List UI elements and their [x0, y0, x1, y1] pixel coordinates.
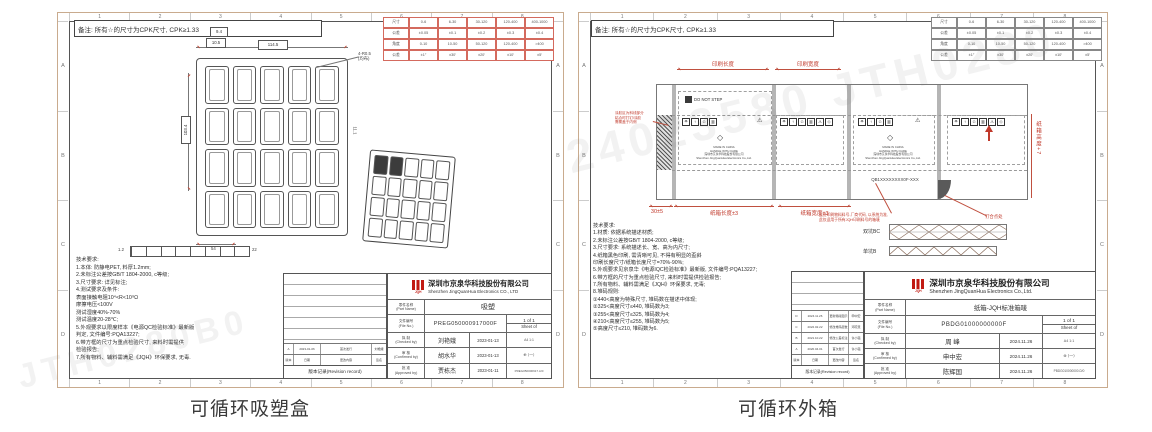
grid-row-label: B: [579, 111, 589, 201]
grid-col-label: 1: [69, 379, 129, 387]
flap-dim-line: [649, 206, 673, 207]
checked-label: 拟 制 (Checked by): [388, 333, 424, 347]
file-no-label: 文件编号 (File No.): [388, 315, 424, 332]
this-side-up-arrow: [985, 125, 993, 141]
tolerance-cell: 6-30: [438, 17, 467, 28]
tray-pocket: [315, 108, 339, 146]
grid-col-label: 5: [311, 379, 371, 387]
revision-letter: C: [792, 322, 801, 332]
flute-bc-label: 双坑BC: [863, 228, 880, 235]
tolerance-cell: 角度: [931, 39, 957, 50]
do-not-step-mark: DO NOT STEP: [685, 96, 722, 103]
grid-row-label: C: [553, 200, 563, 290]
tolerance-cell: ±1°: [957, 50, 986, 61]
tolerance-cell: ±5′: [525, 50, 554, 61]
handling-icon: ♲: [798, 118, 806, 126]
grid-row-label: C: [1097, 200, 1107, 290]
section-cell: [220, 247, 235, 256]
grid-col-label: 4: [250, 379, 310, 387]
tolerance-cell: ±1°: [409, 50, 438, 61]
revision-empty-rows: [284, 274, 386, 343]
revision-header: 签名: [371, 355, 386, 365]
print-width-line: [775, 69, 841, 70]
approved-name: 贾栋杰: [424, 364, 469, 378]
jqh-logo-text: JQH: [415, 290, 422, 294]
grid-col-label: 6: [906, 379, 969, 387]
dim-line-bottom: [196, 244, 236, 245]
confirmed-name: 申中宏: [905, 349, 999, 363]
grid-row-label: D: [553, 290, 563, 380]
tolerance-cell: ±5′: [1073, 50, 1102, 61]
blister-tray-drawing-sheet: 12345678 12345678 ABCD ABCD 备注: 所有☆的尺寸为C…: [57, 12, 564, 388]
file-no-value: PREG050000917000F: [424, 315, 506, 332]
radius-callout: 4-R0.5 (均布): [358, 51, 400, 62]
stitch-note: 钉合点处: [985, 214, 1003, 220]
checked-date: 2023-01-13: [469, 333, 506, 347]
grid-row-label: C: [579, 200, 589, 290]
tolerance-cell: 10-50: [986, 39, 1015, 50]
tray-pocket: [288, 66, 312, 104]
tray-pocket-iso: [402, 178, 417, 198]
tray-pocket: [205, 149, 229, 187]
handling-icon: ▥: [885, 118, 893, 126]
section-cell: [146, 247, 161, 256]
handling-icon: ♲: [876, 118, 884, 126]
grid-col-label: 6: [371, 379, 431, 387]
carton-length-line: [674, 206, 774, 207]
revision-desc: 更新箱唛图示: [828, 311, 848, 321]
tray-pocket: [315, 191, 339, 229]
projection-symbol: ⊕ ⟨一⟩: [506, 348, 551, 362]
material-code: QB1XXXXXXXX0F-XXX: [853, 177, 937, 182]
tolerance-cell: 0-6: [409, 17, 438, 28]
file-no-label: 文件编号 (File No.): [865, 316, 905, 333]
company-name-cn: 深圳市京泉华科技股份有限公司: [929, 277, 1049, 289]
carton-height-line: [1031, 114, 1032, 198]
part-name-value: 纸箱-JQH标准箱唛: [905, 300, 1095, 315]
tolerance-cell: ±0.1: [438, 28, 467, 39]
tolerance-cell: ±0.4: [525, 28, 554, 39]
tolerance-cell: 30-120: [1015, 17, 1044, 28]
crease-line: [672, 85, 676, 199]
title-block: JQH 深圳市京泉华科技股份有限公司 Shenzhen JingQuanHua …: [387, 273, 552, 379]
checked-date: 2024.11.26: [999, 334, 1042, 348]
tray-top-view: [196, 58, 348, 236]
tray-pocket-iso: [371, 176, 386, 196]
confirmed-row: 审 核 (Confirmed by) 胡水华 2023-01-13 ⊕ ⟨一⟩: [388, 347, 551, 362]
tolerance-cell: 0-6: [957, 17, 986, 28]
checked-name: 周 峰: [905, 334, 999, 348]
projection-symbol: ⊕ ⟨一⟩: [1042, 349, 1095, 363]
checked-name: 刘艳娥: [424, 333, 469, 347]
warning-icon: ⚠: [757, 117, 762, 124]
tray-pocket-iso: [430, 223, 445, 243]
grid-column-labels: 12345678: [69, 379, 552, 387]
tray-pocket: [288, 108, 312, 146]
section-cell: [205, 247, 220, 256]
tolerance-cell: ±20′: [1015, 50, 1044, 61]
checked-row: 拟 制 (Checked by) 刘艳娥 2023-01-13 A4 1:1: [388, 332, 551, 347]
revision-date: 2021.10.22: [801, 333, 828, 343]
revision-letter: A: [284, 344, 293, 354]
tray-iso-view: [362, 149, 456, 248]
revision-table: D 2024.11.26 更新箱唛图示 申中宏 C 2022.02.22 修改堆…: [791, 271, 864, 379]
tolerance-cell: 0-10: [957, 39, 986, 50]
grid-row-label: B: [58, 111, 68, 201]
dim-overall-width: 114.5: [258, 40, 288, 50]
handling-icon: ♲: [700, 118, 708, 126]
company-name-en: Shenzhen JingQuanHua Electronics Co.,Ltd…: [929, 289, 1049, 295]
grid-col-label: 5: [843, 13, 906, 21]
format-scale: A4 1:1: [1042, 334, 1095, 348]
grid-col-label: 7: [970, 379, 1033, 387]
approved-label: 批 准 (Approved by): [388, 364, 424, 378]
cpk-note: 备注: 所有☆的尺寸为CPK尺寸, CPK≥1.33: [591, 20, 834, 37]
tolerance-cell: 30-120: [467, 17, 496, 28]
tray-pocket-iso: [433, 181, 448, 201]
tolerance-cell: 400-1000: [525, 17, 554, 28]
grid-col-label: 8: [1033, 379, 1096, 387]
caption-outer-carton: 可循环外箱: [676, 394, 900, 421]
warning-icon: ⚠: [915, 117, 920, 124]
grid-row-label: B: [553, 111, 563, 201]
dim-pocket-width: 11.1: [353, 126, 358, 134]
revision-desc: 修改公差标注: [828, 333, 848, 343]
tolerance-cell: 10-50: [438, 39, 467, 50]
grid-col-label: 2: [653, 379, 716, 387]
approved-name: 陈辉国: [905, 364, 999, 378]
grid-col-label: 7: [431, 379, 491, 387]
grid-row-labels: ABCD: [58, 21, 68, 379]
sheet-label: Sheet of: [1043, 325, 1095, 330]
handling-icon: ◇: [825, 118, 833, 126]
handling-icon: ♲: [970, 118, 978, 126]
handling-icon: ◇: [997, 118, 1005, 126]
tolerance-table: 尺寸0-66-3030-120120-400400-1000公差±0.05±0.…: [931, 17, 1102, 61]
revision-row: D 2024.11.26 更新箱唛图示 申中宏: [792, 310, 863, 321]
handling-icon: ☂: [780, 118, 788, 126]
revision-row: A 2023-01-06 首次发行 刘艳娥: [284, 343, 386, 354]
grid-col-label: 4: [780, 379, 843, 387]
tray-pocket-iso: [414, 222, 429, 242]
handling-icon: ⚠: [816, 118, 824, 126]
revision-record-label: 版本记录(Revision record): [284, 365, 386, 378]
print-length-label: 印刷长度: [677, 60, 769, 68]
carton-width-line: [778, 206, 851, 207]
revision-table: A 2023-01-06 首次发行 刘艳娥 版本 日期 更改内容 签名 版本记录…: [283, 273, 387, 379]
revision-date: 2024.11.26: [801, 311, 828, 321]
revision-header: 日期: [293, 355, 320, 365]
fold-line-bottom: [672, 170, 1027, 171]
jqh-logo-text: JQH: [915, 289, 922, 293]
revision-by: 许小强: [848, 344, 863, 354]
grid-row-labels: ABCD: [1097, 21, 1107, 379]
tolerance-cell: ±30′: [986, 50, 1015, 61]
revision-by: 刘艳娥: [371, 344, 386, 354]
handling-icon: ↑: [961, 118, 969, 126]
part-name-label: 零件名称 (Part Name): [388, 300, 424, 314]
carton-unfolded-view: DO NOT STEP ☂↑♲▥ ⚠ ☂↑♲▥⚠◇ ☂↑♲▥ ⚠ ☂↑♲▥⚠◇ …: [656, 84, 1028, 200]
company-row: JQH 深圳市京泉华科技股份有限公司 Shenzhen JingQuanHua …: [388, 274, 551, 299]
tolerance-cell: 公差: [931, 50, 957, 61]
carton-drawing-sheet: 12345678 12345678 ABCD ABCD 备注: 所有☆的尺寸为C…: [578, 12, 1108, 388]
tolerance-cell: ±0.1: [986, 28, 1015, 39]
tray-pocket-iso: [399, 220, 414, 240]
tray-pocket: [315, 149, 339, 187]
company-name-cn: 深圳市京泉华科技股份有限公司: [428, 279, 529, 289]
tray-pocket: [260, 108, 284, 146]
tray-pocket: [205, 191, 229, 229]
revision-header: 更改内容: [828, 355, 848, 365]
do-not-step-text: DO NOT STEP: [694, 97, 722, 102]
section-cell: [131, 247, 146, 256]
tolerance-cell: ±0.3: [1044, 28, 1073, 39]
tray-pocket: [288, 191, 312, 229]
tray-pocket: [315, 66, 339, 104]
revision-by: 申中宏: [848, 311, 863, 321]
company-row: JQH 深圳市京泉华科技股份有限公司 Shenzhen JingQuanHua …: [865, 272, 1095, 299]
tolerance-cell: ±0.05: [957, 28, 986, 39]
tray-pocket-iso: [404, 158, 419, 178]
tray-pocket-iso: [389, 156, 404, 176]
handling-icons-panel1: ☂↑♲▥: [682, 118, 717, 126]
grid-col-label: 2: [129, 379, 189, 387]
format-scale: A4 1:1: [506, 333, 551, 347]
revision-row: C 2022.02.22 修改堆码层数 邓晓慧: [792, 321, 863, 332]
tray-pocket-iso: [435, 160, 450, 180]
carton-height-label: 纸箱高度+7: [1034, 121, 1042, 155]
dim-pitch-2: 10.5: [206, 38, 226, 48]
approved-row: 批 准 (Approved by) 贾栋杰 2023-01-11 PREG050…: [388, 363, 551, 378]
tray-pocket: [233, 191, 257, 229]
sheet-label: Sheet of: [507, 324, 551, 329]
jqh-diamond-logo: ◇: [717, 133, 723, 142]
tolerance-cell: >400: [1073, 39, 1102, 50]
tray-pocket: [260, 66, 284, 104]
part-name-row: 零件名称 (Part Name) 纸箱-JQH标准箱唛: [865, 299, 1095, 315]
handling-icon: ↑: [789, 118, 797, 126]
handling-icon: ↑: [867, 118, 875, 126]
revision-date: 2023-01-06: [293, 344, 320, 354]
tolerance-cell: ±0.3: [496, 28, 525, 39]
revision-by: 许小强: [848, 333, 863, 343]
revision-header: 签名: [848, 355, 863, 365]
flute-b-section: [889, 246, 997, 256]
tolerance-cell: 公差: [383, 28, 409, 39]
revision-letter: D: [792, 311, 801, 321]
tolerance-cell: 400-1000: [1073, 17, 1102, 28]
section-cell: [234, 247, 249, 256]
file-no-row: 文件编号 (File No.) PREG050000917000F 1 of 1…: [388, 314, 551, 332]
grid-column-labels: 12345678: [590, 379, 1096, 387]
caption-blister-box: 可循环吸塑盒: [140, 394, 360, 421]
flap-dim-label: 30±5: [635, 209, 679, 215]
flute-bc-section: [889, 224, 1007, 240]
grid-row-label: A: [58, 21, 68, 111]
tolerance-cell: ±10′: [1044, 50, 1073, 61]
revision-header: 日期: [801, 355, 828, 365]
tolerance-cell: 6-30: [986, 17, 1015, 28]
confirmed-label: 审 核 (Confirmed by): [388, 348, 424, 362]
tolerance-cell: 120-400: [496, 39, 525, 50]
tolerance-cell: ±10′: [496, 50, 525, 61]
tray-pocket: [233, 66, 257, 104]
tray-pocket-iso: [383, 219, 398, 239]
tolerance-cell: 120-400: [1044, 39, 1073, 50]
grid-row-label: B: [1097, 111, 1107, 201]
handling-icon: ↑: [691, 118, 699, 126]
handling-icon: ▥: [709, 118, 717, 126]
handling-icons-panel2: ☂↑♲▥⚠◇: [780, 118, 833, 126]
tolerance-cell: ±0.4: [1073, 28, 1102, 39]
handling-icon: ▥: [807, 118, 815, 126]
confirmed-date: 2023-01-13: [469, 348, 506, 362]
revision-row: A 2020.04.01 首次发行 许小强: [792, 343, 863, 354]
revision-empty-rows: [792, 272, 863, 310]
approved-label: 批 准 (Approved by): [865, 364, 905, 378]
dim-section-thickness: 1.2: [118, 247, 124, 252]
revision-desc: 首次发行: [320, 344, 371, 354]
company-name-en: Shenzhen JingQuanHua Electronics CO., LT…: [428, 289, 529, 294]
made-in-china-block: MADE IN CHINA HANDLE WITH CARE 深圳市京泉华科技股…: [681, 146, 767, 161]
dim-pitch-1: 9.4: [210, 27, 228, 37]
print-length-line: [677, 69, 769, 70]
tray-pocket: [260, 191, 284, 229]
tolerance-cell: 120-400: [1044, 17, 1073, 28]
dim-height: 103.4: [181, 116, 191, 144]
glue-flap-note: 涂胶区为斜线部分 粘合时打钉/涂胶 需覆盖于内侧: [615, 111, 659, 125]
handling-icon: ☂: [682, 118, 690, 126]
revision-header: 更改内容: [320, 355, 371, 365]
tolerance-cell: 120-400: [496, 17, 525, 28]
tray-pocket-iso: [400, 199, 415, 219]
tray-pocket-iso: [387, 177, 402, 197]
tray-pocket-iso: [369, 197, 384, 217]
revision-desc: 首次发行: [828, 344, 848, 354]
section-cell: [161, 247, 176, 256]
tolerance-cell: ±0.2: [467, 28, 496, 39]
revision-header-row: 版本 日期 更改内容 签名: [792, 354, 863, 365]
handling-icons-panel3: ☂↑♲▥: [858, 118, 893, 126]
grid-row-label: A: [553, 21, 563, 111]
tray-pocket: [205, 66, 229, 104]
section-cell: [175, 247, 190, 256]
file-no-row: 文件编号 (File No.) PBDG01000000000F 1 of 1 …: [865, 315, 1095, 333]
tray-pocket: [233, 149, 257, 187]
tray-pocket-iso: [418, 180, 433, 200]
confirmed-label: 审 核 (Confirmed by): [865, 349, 905, 363]
revision-date: 2022.02.22: [801, 322, 828, 332]
jqh-logo-icon: JQH: [910, 279, 926, 293]
file-no-value: PBDG01000000000F: [905, 316, 1042, 333]
grid-col-label: 8: [492, 379, 552, 387]
part-name-label: 零件名称 (Part Name): [865, 300, 905, 315]
drawing-code: PREG050000917.A/0: [506, 364, 551, 378]
tolerance-cell: ±20′: [467, 50, 496, 61]
do-not-step-icon: [685, 96, 692, 103]
crease-line: [847, 85, 851, 199]
revision-by: 邓晓慧: [848, 322, 863, 332]
grid-row-label: D: [579, 290, 589, 380]
tray-pocket-iso: [432, 202, 447, 222]
revision-header-row: 版本 日期 更改内容 签名: [284, 354, 386, 365]
print-code-note: 此处印刷物料料号-厂商代码, 以系统为准, 此仅适用于所有JQH印刷料号的箱唛: [819, 213, 939, 223]
revision-date: 2020.04.01: [801, 344, 828, 354]
tolerance-cell: 尺寸: [931, 17, 957, 28]
revision-row: B 2021.10.22 修改公差标注 许小强: [792, 332, 863, 343]
tray-pocket-iso: [385, 198, 400, 218]
made-in-china-block: MADE IN CHINA HANDLE WITH CARE 深圳市京泉华科技股…: [855, 146, 931, 161]
tolerance-cell: ±0.05: [409, 28, 438, 39]
approved-row: 批 准 (Approved by) 陈辉国 2024.11.26 PBDG010…: [865, 363, 1095, 378]
revision-letter: B: [792, 333, 801, 343]
handling-icons-panel4: ☂↑♲▥⚠◇: [952, 118, 1005, 126]
tolerance-cell: 公差: [931, 28, 957, 39]
carton-length-label: 纸箱长度±3: [674, 209, 774, 217]
grid-col-label: 5: [843, 379, 906, 387]
tolerance-cell: ±30′: [438, 50, 467, 61]
checked-row: 拟 制 (Checked by) 周 峰 2024.11.26 A4 1:1: [865, 333, 1095, 348]
confirmed-name: 胡水华: [424, 348, 469, 362]
technical-notes: 技术要求: 1.本体: 防静电PET, 料厚1.2mm; 2.未标注公差按GB/…: [76, 257, 278, 362]
approved-date: 2024.11.26: [999, 364, 1042, 378]
grid-row-labels: ABCD: [553, 21, 563, 379]
part-name-value: 吸塑: [424, 300, 551, 314]
grid-col-label: 1: [590, 379, 653, 387]
tray-pocket: [260, 149, 284, 187]
part-name-row: 零件名称 (Part Name) 吸塑: [388, 299, 551, 314]
revision-header: 版本: [284, 355, 293, 365]
tray-pocket: [233, 108, 257, 146]
tolerance-cell: 50-120: [1015, 39, 1044, 50]
tray-pocket-iso: [416, 201, 431, 221]
tolerance-cell: >400: [525, 39, 554, 50]
grid-row-label: D: [1097, 290, 1107, 380]
section-cell: [190, 247, 205, 256]
revision-record-label: 版本记录(Revision record): [792, 365, 863, 378]
tray-pocket-iso: [373, 155, 388, 175]
revision-header: 版本: [792, 355, 801, 365]
checked-label: 拟 制 (Checked by): [865, 334, 905, 348]
grid-col-label: 3: [717, 379, 780, 387]
print-width-label: 印刷宽度: [775, 60, 841, 68]
tray-section-view: [130, 246, 250, 257]
tray-pocket: [288, 149, 312, 187]
revision-letter: A: [792, 344, 801, 354]
confirmed-date: 2024.11.26: [999, 349, 1042, 363]
tolerance-cell: 尺寸: [383, 17, 409, 28]
grid-col-label: 3: [190, 379, 250, 387]
handling-icon: ☂: [952, 118, 960, 126]
flute-b-label: 单坑B: [863, 248, 876, 255]
title-block: JQH 深圳市京泉华科技股份有限公司 Shenzhen JingQuanHua …: [864, 271, 1096, 379]
jqh-diamond-logo: ◇: [887, 133, 893, 142]
tolerance-cell: 50-120: [467, 39, 496, 50]
drawing-code: PBDG010000000.D/0: [1042, 364, 1095, 378]
revision-desc: 修改堆码层数: [828, 322, 848, 332]
tray-pocket: [205, 108, 229, 146]
grid-row-label: C: [58, 200, 68, 290]
handling-icon: ☂: [858, 118, 866, 126]
confirmed-row: 审 核 (Confirmed by) 申中宏 2024.11.26 ⊕ ⟨一⟩: [865, 348, 1095, 363]
tolerance-cell: 0-10: [409, 39, 438, 50]
tolerance-cell: 角度: [383, 39, 409, 50]
grid-row-label: A: [579, 21, 589, 111]
cpk-note: 备注: 所有☆的尺寸为CPK尺寸, CPK≥1.33: [74, 20, 322, 37]
grid-row-labels: ABCD: [579, 21, 589, 379]
jqh-logo-icon: JQH: [410, 280, 426, 294]
approved-date: 2023-01-11: [469, 364, 506, 378]
